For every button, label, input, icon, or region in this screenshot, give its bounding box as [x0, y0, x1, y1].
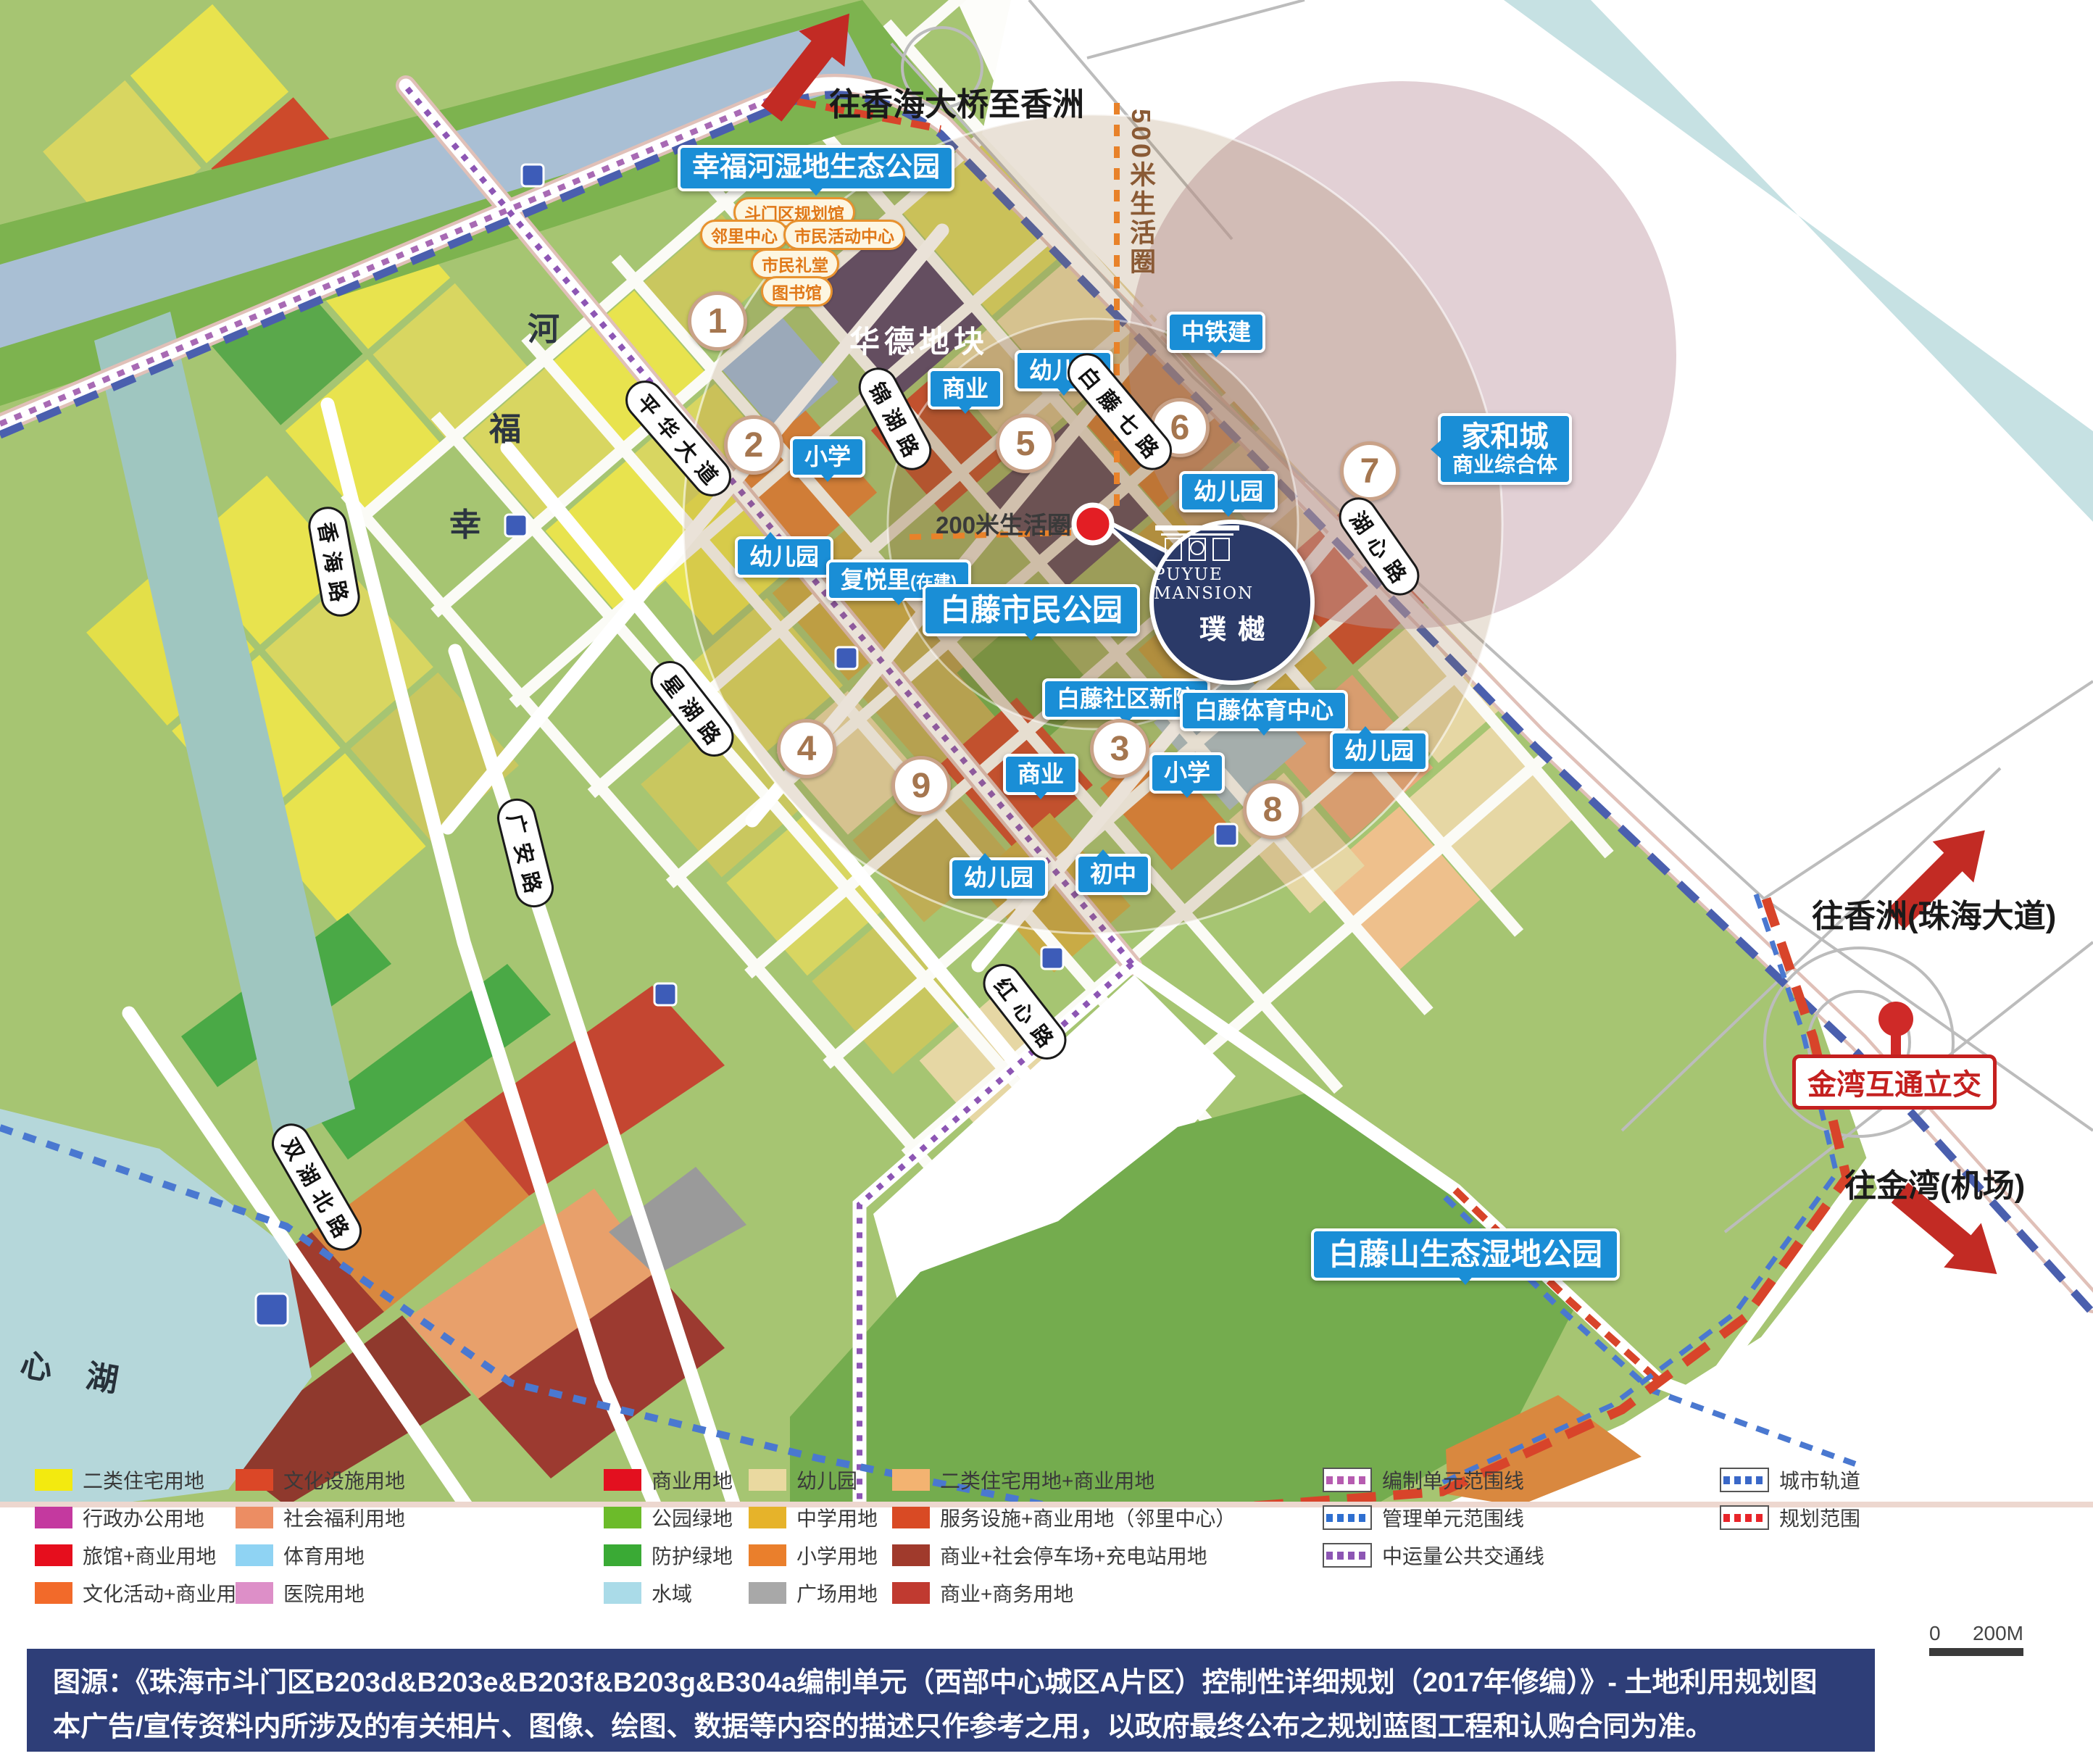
legend-item: 文化活动+商业用地 — [35, 1578, 257, 1607]
marker-2: 2 — [724, 415, 783, 475]
label-middle-school: 初中 — [1075, 854, 1151, 895]
label-primary-bottom: 小学 — [1149, 752, 1225, 794]
legend-swatch — [892, 1544, 930, 1566]
legend-swatch — [35, 1507, 72, 1528]
legend-item: 商业+商务用地 — [892, 1578, 1073, 1607]
legend-label: 旅馆+商业用地 — [83, 1541, 216, 1570]
label-kindergarten-3: 幼儿园 — [1179, 471, 1278, 512]
legend-label: 二类住宅用地+商业用地 — [940, 1465, 1154, 1494]
label-zhongtiejian: 中铁建 — [1167, 312, 1265, 353]
label-xingfu-wetland-park: 幸福河湿地生态公园 — [678, 145, 954, 191]
legend-swatch — [604, 1544, 641, 1566]
legend-label: 文化设施用地 — [283, 1465, 405, 1494]
marker-5: 5 — [996, 414, 1055, 473]
legend-label: 社会福利用地 — [283, 1503, 405, 1532]
legend-label: 商业+商务用地 — [940, 1578, 1073, 1607]
legend-item: 文化设施用地 — [236, 1465, 405, 1494]
legend-label: 文化活动+商业用地 — [83, 1578, 257, 1607]
label-commercial-bottom: 商业 — [1003, 754, 1078, 795]
planning-map-poster: 往香海大桥至香洲 往香洲(珠海大道) 往金湾(机场) 幸福河湿地生态公园 中铁建… — [0, 0, 2093, 1764]
legend-swatch — [236, 1582, 273, 1604]
legend-label: 中学用地 — [796, 1503, 878, 1532]
legend-item: 体育用地 — [236, 1541, 365, 1570]
label-jiahecheng-sub: 商业综合体 — [1452, 454, 1557, 478]
river-char-fu: 福 — [489, 403, 521, 449]
legend-swatch — [892, 1469, 930, 1491]
marker-7: 7 — [1340, 441, 1399, 501]
legend-label: 编制单元范围线 — [1382, 1465, 1524, 1494]
river-char-xing: 幸 — [449, 499, 481, 545]
legend-label: 城市轨道 — [1779, 1465, 1860, 1494]
legend-swatch — [749, 1507, 786, 1528]
project-name-cn: 璞樾 — [1188, 607, 1276, 646]
marker-3: 3 — [1090, 719, 1149, 778]
marker-1: 1 — [688, 291, 747, 351]
river-char-he: 河 — [528, 303, 559, 349]
label-200m-circle: 200米生活圈 — [936, 506, 1071, 541]
scale-zero: 0 — [1929, 1622, 1941, 1645]
project-name-en: PUYUE MANSION — [1154, 565, 1310, 603]
marker-8: 8 — [1243, 780, 1302, 839]
legend-item: 小学用地 — [749, 1541, 878, 1570]
disclaimer-line2: 本广告/宣传资料内所涉及的有关相片、图像、绘图、数据等内容的描述只作参考之用，以… — [53, 1707, 1849, 1747]
label-jiahecheng: 家和城 商业综合体 — [1438, 413, 1572, 485]
legend-label: 医院用地 — [283, 1578, 365, 1607]
legend-item: 服务设施+商业用地（邻里中心） — [892, 1503, 1236, 1532]
legend-label: 广场用地 — [796, 1578, 878, 1607]
label-commercial-top: 商业 — [928, 368, 1003, 409]
label-kindergarten-2: 幼儿园 — [735, 536, 833, 578]
legend-label: 水域 — [652, 1578, 692, 1607]
legend-label: 管理单元范围线 — [1382, 1503, 1524, 1532]
label-primary-left: 小学 — [790, 436, 865, 478]
label-kindergarten-4: 幼儿园 — [1330, 731, 1428, 772]
legend-label: 幼儿园 — [796, 1465, 857, 1494]
project-location-dot — [1074, 505, 1112, 543]
label-civic-activity-center: 市民活动中心 — [783, 220, 905, 250]
legend-item: 旅馆+商业用地 — [35, 1541, 216, 1570]
legend-label: 行政办公用地 — [83, 1503, 204, 1532]
legend-item: 广场用地 — [749, 1578, 878, 1607]
legend-swatch — [35, 1544, 72, 1566]
project-logo-callout: PUYUE MANSION 璞樾 — [1149, 520, 1315, 685]
legend-label: 商业用地 — [652, 1465, 733, 1494]
legend-item: 医院用地 — [236, 1578, 365, 1607]
label-baitengshan-park: 白藤山生态湿地公园 — [1311, 1228, 1620, 1281]
legend-item: 规划范围 — [1720, 1503, 1860, 1532]
direction-jinwan-airport: 往金湾(机场) — [1844, 1160, 2025, 1206]
legend-label: 规划范围 — [1779, 1503, 1860, 1532]
legend-line-swatch — [1323, 1505, 1372, 1530]
legend-line-swatch — [1323, 1468, 1372, 1492]
legend-label: 小学用地 — [796, 1541, 878, 1570]
legend-item: 中运量公共交通线 — [1323, 1541, 1544, 1570]
legend-item: 公园绿地 — [604, 1503, 733, 1532]
legend-swatch — [892, 1582, 930, 1604]
label-library: 图书馆 — [761, 276, 833, 307]
legend-item: 水域 — [604, 1578, 692, 1607]
legend-item: 行政办公用地 — [35, 1503, 204, 1532]
label-jiahecheng-title: 家和城 — [1462, 421, 1549, 453]
scale-bar: 0 200M — [1929, 1622, 2023, 1656]
legend-line-swatch — [1720, 1505, 1769, 1530]
legend-swatch — [749, 1544, 786, 1566]
legend-item: 编制单元范围线 — [1323, 1465, 1524, 1494]
legend-swatch — [236, 1507, 273, 1528]
legend-label: 二类住宅用地 — [83, 1465, 204, 1494]
direction-xiangzhou: 往香洲(珠海大道) — [1812, 890, 2056, 936]
legend-swatch — [236, 1469, 273, 1491]
legend-swatch — [236, 1544, 273, 1566]
legend-label: 服务设施+商业用地（邻里中心） — [940, 1503, 1236, 1532]
label-neighborhood-center: 邻里中心 — [700, 220, 788, 250]
legend-item: 社会福利用地 — [236, 1503, 405, 1532]
legend-swatch — [749, 1582, 786, 1604]
legend-item: 中学用地 — [749, 1503, 878, 1532]
legend-swatch — [604, 1582, 641, 1604]
legend-swatch — [749, 1469, 786, 1491]
label-civic-hall: 市民礼堂 — [751, 249, 839, 279]
legend-label: 商业+社会停车场+充电站用地 — [940, 1541, 1207, 1570]
legend-item: 二类住宅用地 — [35, 1465, 204, 1494]
disclaimer-line1: 图源：《珠海市斗门区B203d&B203e&B203f&B203g&B304a编… — [53, 1663, 1849, 1703]
legend-swatch — [604, 1507, 641, 1528]
legend-line-swatch — [1720, 1468, 1769, 1492]
label-huade-plot: 华德地块 — [849, 317, 989, 362]
disclaimer-box: 图源：《珠海市斗门区B203d&B203e&B203f&B203g&B304a编… — [27, 1649, 1875, 1752]
label-fuyueli-name: 复悦里 — [841, 567, 910, 593]
label-jinwan-interchange: 金湾互通立交 — [1792, 1054, 1997, 1110]
legend-swatch — [604, 1469, 641, 1491]
label-baiteng-sports-center: 白藤体育中心 — [1180, 690, 1348, 731]
legend-item: 城市轨道 — [1720, 1465, 1860, 1494]
label-500m-circle: 500米生活圈 — [1122, 109, 1160, 277]
scale-max: 200M — [1973, 1622, 2023, 1645]
legend-swatch — [35, 1469, 72, 1491]
legend-swatch — [892, 1507, 930, 1528]
legend-swatch — [35, 1582, 72, 1604]
legend-item: 商业+社会停车场+充电站用地 — [892, 1541, 1207, 1570]
legend-item: 防护绿地 — [604, 1541, 733, 1570]
map-canvas: 往香海大桥至香洲 往香洲(珠海大道) 往金湾(机场) 幸福河湿地生态公园 中铁建… — [0, 0, 2093, 1507]
marker-9: 9 — [891, 756, 951, 815]
marker-4: 4 — [777, 719, 836, 778]
legend-item: 幼儿园 — [749, 1465, 857, 1494]
mansion-gate-icon — [1154, 524, 1241, 562]
legend-line-swatch — [1323, 1543, 1372, 1568]
label-kindergarten-5: 幼儿园 — [949, 857, 1048, 899]
legend-label: 体育用地 — [283, 1541, 365, 1570]
legend-item: 管理单元范围线 — [1323, 1503, 1524, 1532]
legend-label: 防护绿地 — [652, 1541, 733, 1570]
direction-xianghai-bridge: 往香海大桥至香洲 — [829, 78, 1084, 125]
legend-label: 公园绿地 — [652, 1503, 733, 1532]
legend-item: 二类住宅用地+商业用地 — [892, 1465, 1154, 1494]
label-baiteng-citizen-park: 白藤市民公园 — [923, 584, 1140, 636]
legend-label: 中运量公共交通线 — [1382, 1541, 1544, 1570]
legend-item: 商业用地 — [604, 1465, 733, 1494]
scale-bar-line — [1929, 1648, 2023, 1656]
